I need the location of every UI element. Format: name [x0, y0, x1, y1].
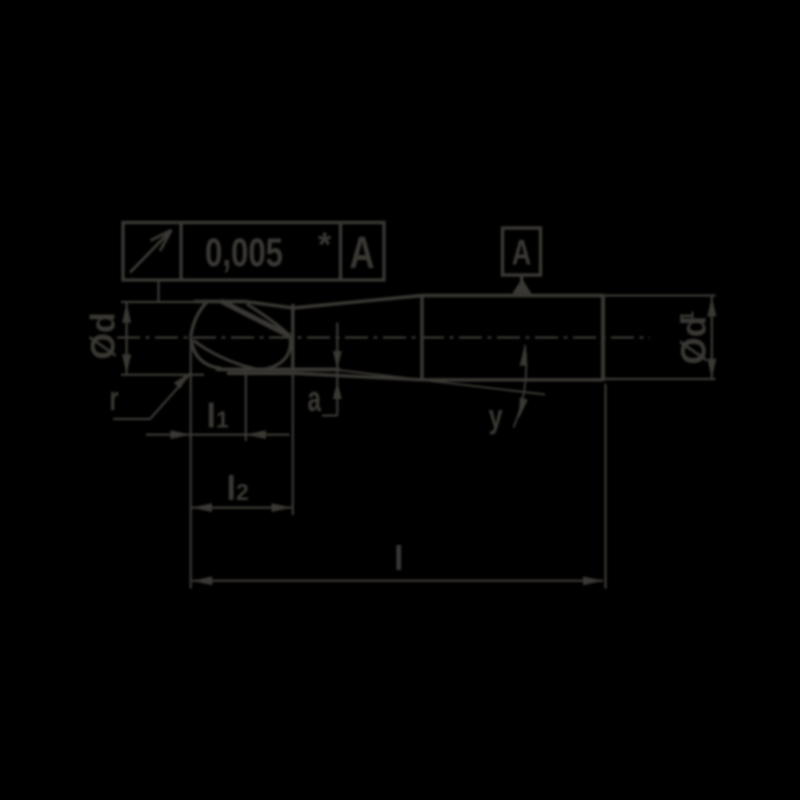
- svg-text:r: r: [110, 380, 119, 418]
- svg-text:a: a: [308, 378, 322, 419]
- svg-text:0,005: 0,005: [205, 231, 283, 275]
- svg-text:A: A: [350, 227, 375, 278]
- svg-text:l: l: [394, 540, 403, 578]
- svg-text:Ød: Ød: [675, 316, 714, 365]
- svg-text:Ød: Ød: [85, 312, 123, 359]
- svg-text:A: A: [512, 234, 532, 273]
- svg-text:*: *: [318, 226, 332, 264]
- svg-text:1: 1: [678, 311, 699, 322]
- svg-text:y: y: [489, 398, 503, 435]
